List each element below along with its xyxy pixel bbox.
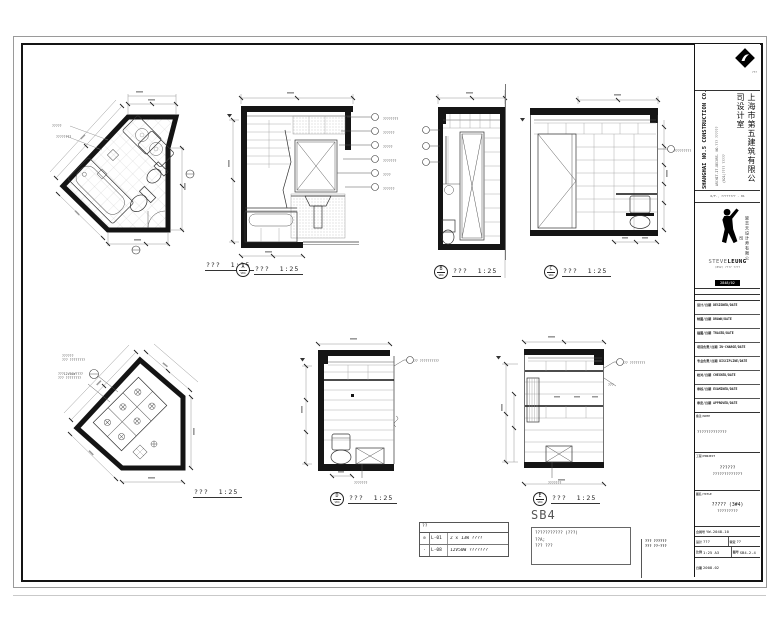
- sb4-heading: SB4: [531, 508, 556, 522]
- lamp-symbol-icon: ·: [420, 545, 430, 556]
- signature-row: 制图/日期 DRAWN/DATE: [695, 314, 760, 328]
- date-value: 2008.02: [703, 565, 719, 570]
- callout-label: ??????: [383, 131, 395, 135]
- signature-row: 设计/日期 DESIGNED/DATE: [695, 301, 760, 314]
- elevation-b-label: BSB4 ??? 1:25: [434, 265, 501, 279]
- elevation-c-bubble: CSB4: [544, 265, 558, 279]
- drawing-number: SB4-2-4: [740, 550, 756, 555]
- scale-dwgno-row: 比例1:25 A3 图号SB4-2-4: [695, 546, 760, 557]
- elevation-e-svg: [488, 334, 678, 492]
- corner-note: ??? ?????? ??? ??-???: [645, 539, 693, 549]
- legend-code: L-01: [430, 533, 448, 544]
- note-value: ?????????????: [697, 429, 758, 434]
- signature-row: 专业负责/日期 DISCIPLINE/DATE: [695, 356, 760, 370]
- contract-row: 合同号 YW-2048-10: [695, 526, 760, 536]
- legend-row: ⊘ L-01 2 x 13W ????: [420, 533, 508, 545]
- section-line: [505, 84, 506, 260]
- elevation-e-bubble: ESB4: [533, 492, 547, 506]
- signature-row: 项目负责/日期 IN-CHARGE/DATE: [695, 342, 760, 356]
- callout-label: ??????: [383, 187, 395, 191]
- elevation-c-drawing: ?????????: [518, 90, 694, 280]
- floor-plan-svg: [50, 78, 250, 268]
- approver-value: ??: [737, 539, 742, 544]
- elevation-c-label: CSB4 ??? 1:25: [544, 265, 611, 279]
- company-name-cn: 上海市第五建筑有限公司设计室: [735, 93, 757, 189]
- signature-rows: 设计/日期 DESIGNED/DATE制图/日期 DRAWN/DATE描图/日期…: [695, 300, 760, 412]
- drawing-title-box: 图名/TITLE ????? (3#4) ?????????: [695, 490, 760, 526]
- elevation-b-bubble: BSB4: [434, 265, 448, 279]
- signature-row: 校对/日期 CHECKED/DATE: [695, 370, 760, 384]
- designer-logo-section: 梁志天设计师有限公司 STEVELEUNG (852) ???? ???? 28…: [695, 202, 760, 288]
- callout-label: ?????????: [674, 149, 691, 153]
- project-box: 工程/PROJECT ?????? ?????????????: [695, 452, 760, 490]
- elevation-d-label: DSB4 ??? 1:25: [330, 492, 397, 506]
- callout-label: ????????: [383, 117, 398, 121]
- legend-desc: 2 x 13W ????: [448, 536, 508, 541]
- callout-label: ?????: [52, 124, 62, 128]
- ceiling-plan-drawing: ?????? ??? ???????????12V50W???? ??? ???…: [58, 336, 253, 496]
- ceiling-plan-svg: [58, 336, 253, 496]
- lighting-legend-table: ?? ⊘ L-01 2 x 13W ???? · L-08 12V50W ???…: [419, 522, 509, 557]
- scale-value: 1:25 A3: [703, 550, 719, 555]
- callout-label: ?? ????????: [624, 361, 645, 365]
- company-phone: (021)???? ?????: [722, 154, 726, 183]
- elevation-a-label: ASB4 ??? 1:25: [236, 263, 303, 277]
- legend-desc: 12V50W ???????: [448, 548, 508, 553]
- callout-label: ?????: [383, 145, 393, 149]
- callout-label: ???: [608, 383, 614, 387]
- callout-label: ???????: [354, 481, 367, 485]
- callout-label: ???????: [383, 159, 396, 163]
- elevation-a-bubble: ASB4: [236, 263, 250, 277]
- callout-label: ?? ??????????: [414, 359, 439, 363]
- sb4-note-box: ??????????? (???) ??A; ??? ???: [531, 527, 631, 565]
- elevation-d-bubble: DSB4: [330, 492, 344, 506]
- legend-code: L-08: [430, 545, 448, 556]
- project-line2: ?????????????: [695, 471, 760, 476]
- elevation-e-drawing: ?? ??????????????????: [488, 334, 678, 492]
- elevation-e-label: ESB4 ??? 1:25: [533, 492, 600, 506]
- designer-value: ???: [703, 539, 710, 544]
- drawing-title-line2: ?????????: [695, 508, 760, 513]
- company-name-section: SHANGHAI NO.5 CONSTRUCTION CO.,LTD ARCHI…: [695, 90, 760, 190]
- elevation-d-drawing: ?? ?????????????????: [296, 336, 474, 494]
- company-logo-icon: [734, 47, 756, 69]
- contract-number: YW-2048-10: [706, 529, 729, 534]
- sheet-edge-line: [13, 595, 766, 596]
- project-badge: 2848/02: [715, 280, 740, 286]
- company-address: ARCHIT.IT.DECORS. NO.??? ??????: [715, 127, 719, 187]
- designer-name-cn: 梁志天设计师有限公司: [738, 215, 750, 261]
- title-block: ??? SHANGHAI NO.5 CONSTRUCTION CO.,LTD A…: [694, 44, 760, 577]
- ceiling-label: ??? 1:25: [193, 488, 242, 498]
- note-box: 备注/NOTE ?????????????: [695, 412, 760, 452]
- company-logo-section: ???: [695, 44, 760, 90]
- elevation-d-svg: [296, 336, 474, 494]
- callout-label: ?????? ??? ????????: [62, 354, 85, 362]
- callout-label: ???????: [548, 481, 561, 485]
- branch-row: 6/F., ???????? - 01: [695, 190, 760, 202]
- callout-label: ???12V50W???? ??? ????????: [58, 372, 83, 380]
- signature-row: 描图/日期 TRACED/DATE: [695, 328, 760, 342]
- cad-sheet: ????????????? ??? 1:25: [0, 0, 780, 624]
- corner-note-line: [641, 539, 642, 578]
- logo-caption: ???: [752, 70, 757, 74]
- signature-row: 审核/日期 EXAMINED/DATE: [695, 384, 760, 398]
- signature-row: 审定/日期 APPROVED/DATE: [695, 398, 760, 412]
- elevation-c-svg: [518, 90, 694, 280]
- design-approve-row: 设计??? 审定??: [695, 536, 760, 546]
- legend-header: ??: [420, 523, 508, 533]
- callout-label: ????: [383, 173, 391, 177]
- date-row: 日期 2008.02: [695, 557, 760, 577]
- floor-plan-drawing: ?????????????: [50, 78, 250, 268]
- company-name-en: SHANGHAI NO.5 CONSTRUCTION CO.,LTD: [702, 90, 708, 189]
- callout-label: ????????: [56, 135, 71, 139]
- elevation-a-drawing: ????????????????????????????????????: [227, 90, 427, 272]
- legend-row: · L-08 12V50W ???????: [420, 545, 508, 556]
- lamp-symbol-icon: ⊘: [420, 533, 430, 544]
